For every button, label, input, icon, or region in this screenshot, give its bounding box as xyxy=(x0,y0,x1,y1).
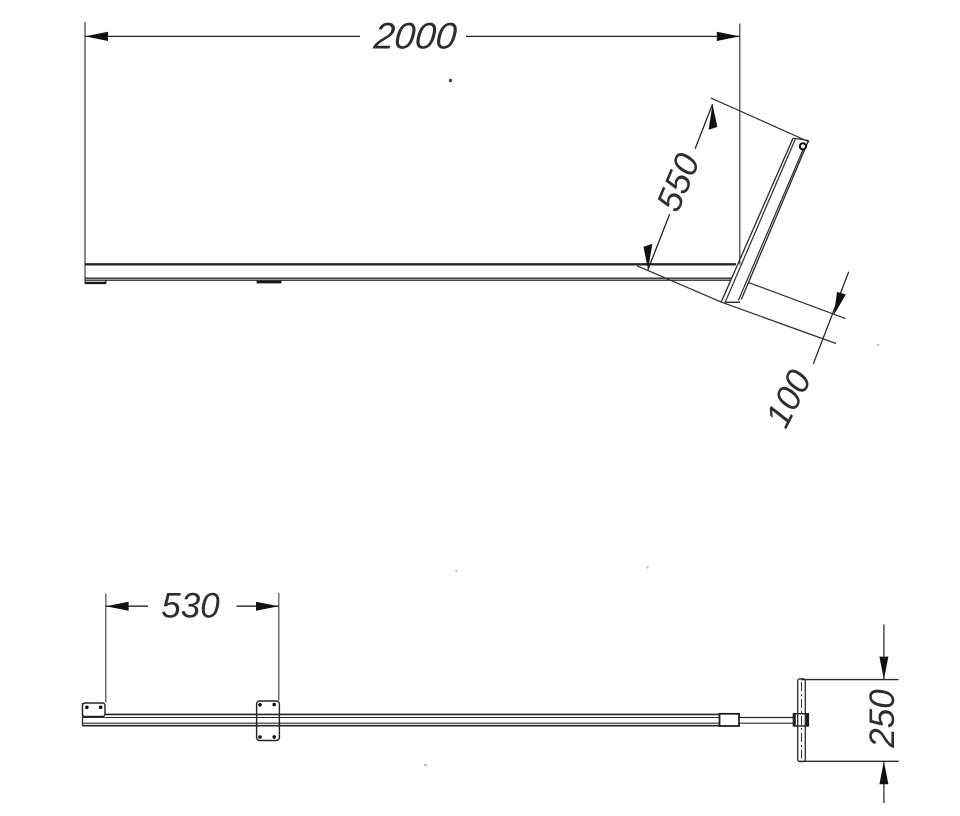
svg-text:530: 530 xyxy=(161,587,220,626)
svg-text:100: 100 xyxy=(758,363,820,433)
svg-text:250: 250 xyxy=(863,689,902,749)
svg-text:550: 550 xyxy=(649,148,708,217)
svg-text:2000: 2000 xyxy=(371,14,459,56)
